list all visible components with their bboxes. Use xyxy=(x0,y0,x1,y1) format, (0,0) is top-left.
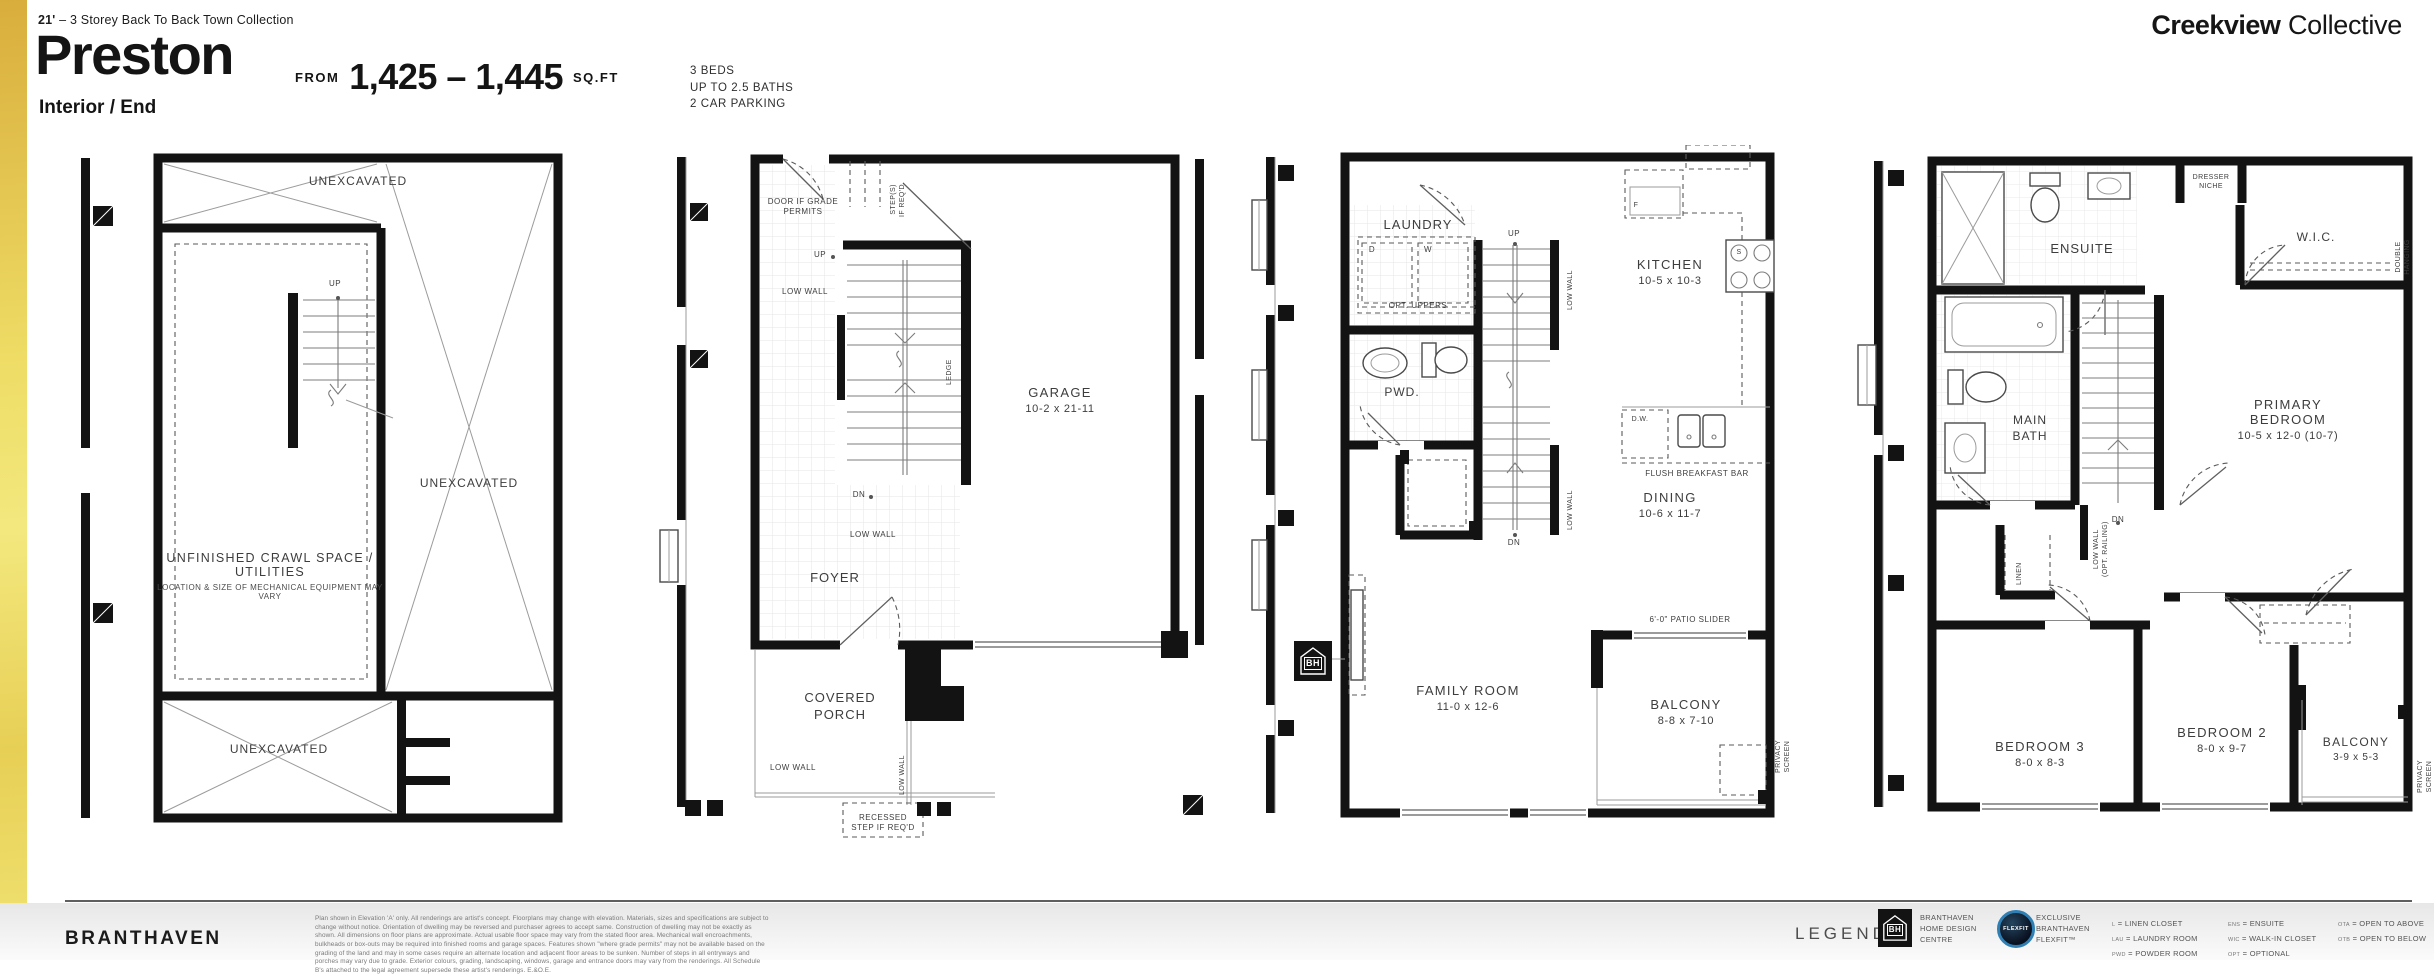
label-unexcavated-top: UNEXCAVATED xyxy=(309,174,407,190)
page-title: Preston xyxy=(35,22,233,87)
label-dryer: D xyxy=(1369,245,1375,255)
label-foyer: FOYER xyxy=(810,570,860,587)
balcony-name: BALCONY xyxy=(1650,697,1721,712)
flexfit-badge-text: FLEXFIT xyxy=(2003,926,2029,932)
label-low-wall-4: LOW WALL xyxy=(898,755,907,795)
spec-baths: UP TO 2.5 BATHS xyxy=(690,80,793,97)
label-main-bath: MAIN BATH xyxy=(2012,413,2047,444)
floor-plan-main: LAUNDRY D W OPT. UPPERS UP LOW WALL KITC… xyxy=(1250,145,1805,845)
branthaven-logo-a: BRANT xyxy=(65,928,144,949)
label-stove: S xyxy=(1736,248,1741,257)
garage-name: GARAGE xyxy=(1025,385,1094,400)
label-steps-if-reqd: STEP(S) IF REQ'D. xyxy=(889,182,907,217)
bh-letters: BH xyxy=(1304,657,1322,670)
label-low-wall-bottom: LOW WALL xyxy=(1566,490,1575,530)
floor-plan-ground: DOOR IF GRADE PERMITS STEP(S) IF REQ'D. … xyxy=(655,145,1210,845)
crawl-space-name: UNFINISHED CRAWL SPACE / UTILITIES xyxy=(155,551,385,579)
spec-beds: 3 BEDS xyxy=(690,63,793,80)
label-crawl-space: UNFINISHED CRAWL SPACE / UTILITIES LOCAT… xyxy=(155,551,385,601)
legend-title: LEGEND xyxy=(1795,924,1889,944)
label-powder-room: PWD. xyxy=(1384,385,1419,401)
label-privacy-screen: PRIVACY SCREEN xyxy=(1774,740,1792,773)
balcony-dim: 8-8 x 7-10 xyxy=(1650,715,1721,727)
floor-plan-upper: ENSUITE DRESSER NICHE W.I.C. DOUBLE HANG… xyxy=(1850,145,2430,835)
label-kitchen: KITCHEN 10-5 x 10-3 xyxy=(1637,257,1703,287)
kitchen-dim: 10-5 x 10-3 xyxy=(1637,275,1703,287)
label-unexcavated-right: UNEXCAVATED xyxy=(420,476,518,492)
family-room-name: FAMILY ROOM xyxy=(1416,683,1519,698)
label-low-wall-2: LOW WALL xyxy=(850,530,896,540)
label-ledge: LEDGE xyxy=(945,359,954,385)
label-up: UP xyxy=(1508,229,1520,239)
floor-plan-ground-drawing xyxy=(655,145,1210,845)
garage-dim: 10-2 x 21-11 xyxy=(1025,403,1094,415)
brand-logo: Creekview Collective xyxy=(2151,10,2402,41)
label-recessed-step: RECESSED STEP IF REQ'D xyxy=(851,813,914,834)
label-bedroom-3: BEDROOM 3 8-0 x 8-3 xyxy=(1995,739,2085,769)
dining-name: DINING xyxy=(1639,490,1702,505)
branthaven-logo-b: HAVEN xyxy=(144,928,222,949)
family-room-dim: 11-0 x 12-6 xyxy=(1416,701,1519,713)
gold-accent-bar xyxy=(0,0,27,960)
kitchen-name: KITCHEN xyxy=(1637,257,1703,272)
bedroom2-name: BEDROOM 2 xyxy=(2177,725,2267,740)
label-balcony-upper: BALCONY 3-9 x 5-3 xyxy=(2323,735,2389,763)
plan-variant: Interior / End xyxy=(39,97,156,119)
legend-column-2: ENS = ENSUITE WIC = WALK-IN CLOSET OPT =… xyxy=(2228,916,2316,961)
label-opt-uppers: OPT. UPPERS xyxy=(1389,301,1447,311)
legend-item-linen: L = LINEN CLOSET xyxy=(2112,916,2198,931)
legend-item-powder: PWD = POWDER ROOM xyxy=(2112,946,2198,961)
legend-item-laundry: LAU = LAUNDRY ROOM xyxy=(2112,931,2198,946)
sqft-range-block: FROM 1,425 – 1,445 SQ.FT xyxy=(295,56,619,98)
balcony-upper-dim: 3-9 x 5-3 xyxy=(2323,752,2389,763)
label-patio-slider: 6'-0" PATIO SLIDER xyxy=(1649,615,1730,625)
label-unexcavated-bottom: UNEXCAVATED xyxy=(230,742,328,758)
label-low-wall-1: LOW WALL xyxy=(782,287,828,297)
legend-item-ensuite: ENS = ENSUITE xyxy=(2228,916,2316,931)
label-double-hanging: DOUBLE HANGING xyxy=(2394,239,2412,275)
flexfit-badge: FLEXFIT xyxy=(1997,910,2035,948)
legend-bh-caption: BRANTHAVEN HOME DESIGN CENTRE xyxy=(1920,913,1977,946)
legend-column-3: OTA = OPEN TO ABOVE OTB = OPEN TO BELOW xyxy=(2338,916,2426,946)
primary-bedroom-dim: 10-5 x 12-0 (10-7) xyxy=(2217,430,2359,442)
label-door-if-grade: DOOR IF GRADE PERMITS xyxy=(768,197,839,218)
label-balcony: BALCONY 8-8 x 7-10 xyxy=(1650,697,1721,727)
sqft-unit: SQ.FT xyxy=(573,70,619,85)
label-bedroom-2: BEDROOM 2 8-0 x 9-7 xyxy=(2177,725,2267,755)
floor-plan-basement: UNEXCAVATED UNEXCAVATED UNEXCAVATED UNFI… xyxy=(63,148,608,838)
label-ensuite: ENSUITE xyxy=(2050,241,2113,258)
bedroom2-dim: 8-0 x 9-7 xyxy=(2177,743,2267,755)
floorplan-sheet: { "header": { "collection_bold": "21'", … xyxy=(0,0,2434,960)
bh-home-badge: BH xyxy=(1294,641,1332,681)
sqft-range: 1,425 – 1,445 xyxy=(349,56,563,98)
label-dn: DN xyxy=(1508,538,1521,548)
label-wic: W.I.C. xyxy=(2297,230,2336,246)
dining-dim: 10-6 x 11-7 xyxy=(1639,508,1702,520)
label-flush-breakfast-bar: FLUSH BREAKFAST BAR xyxy=(1645,469,1749,479)
label-fridge: F xyxy=(1634,201,1639,210)
label-up: UP xyxy=(814,250,826,260)
label-linen: LINEN xyxy=(2015,562,2024,585)
bedroom3-name: BEDROOM 3 xyxy=(1995,739,2085,754)
sqft-from-label: FROM xyxy=(295,70,339,85)
flexfit-caption: EXCLUSIVE BRANTHAVEN FLEXFIT™ xyxy=(2036,913,2090,946)
legend-item-wic: WIC = WALK-IN CLOSET xyxy=(2228,931,2316,946)
label-dining: DINING 10-6 x 11-7 xyxy=(1639,490,1702,520)
floor-plan-upper-drawing xyxy=(1850,145,2430,835)
label-low-wall-3: LOW WALL xyxy=(770,763,816,773)
spec-parking: 2 CAR PARKING xyxy=(690,96,793,113)
legal-disclaimer: Plan shown in Elevation 'A' only. All re… xyxy=(315,915,770,975)
floor-plan-basement-drawing xyxy=(63,148,608,838)
label-laundry: LAUNDRY xyxy=(1384,217,1453,234)
legend-bh-badge: BH xyxy=(1878,909,1912,947)
legend-item-open-below: OTB = OPEN TO BELOW xyxy=(2338,931,2426,946)
label-dn: DN xyxy=(2112,515,2125,525)
label-privacy-screen-upper: PRIVACY SCREEN xyxy=(2416,760,2434,793)
brand-bold: Creekview xyxy=(2151,10,2280,40)
brand-light: Collective xyxy=(2288,10,2402,40)
label-dishwasher: D.W. xyxy=(1632,415,1649,424)
legend-item-open-above: OTA = OPEN TO ABOVE xyxy=(2338,916,2426,931)
label-dn: DN xyxy=(853,490,866,500)
bedroom3-dim: 8-0 x 8-3 xyxy=(1995,757,2085,769)
label-washer: W xyxy=(1424,245,1432,255)
legend-bh-letters: BH xyxy=(1887,924,1904,936)
footer-divider xyxy=(65,900,2412,902)
label-primary-bedroom: PRIMARY BEDROOM 10-5 x 12-0 (10-7) xyxy=(2217,397,2359,442)
crawl-space-note: LOCATION & SIZE OF MECHANICAL EQUIPMENT … xyxy=(155,583,385,601)
legend-column-1: L = LINEN CLOSET LAU = LAUNDRY ROOM PWD … xyxy=(2112,916,2198,961)
label-family-room: FAMILY ROOM 11-0 x 12-6 xyxy=(1416,683,1519,713)
label-low-wall-top: LOW WALL xyxy=(1566,270,1575,310)
label-covered-porch: COVERED PORCH xyxy=(804,690,875,724)
label-dresser-niche: DRESSER NICHE xyxy=(2193,173,2230,191)
legend-item-optional: OPT = OPTIONAL xyxy=(2228,946,2316,961)
label-up: UP xyxy=(329,279,341,289)
floor-plan-main-drawing xyxy=(1250,145,1805,845)
primary-bedroom-name: PRIMARY BEDROOM xyxy=(2217,397,2359,427)
label-low-wall-opt-railing: LOW WALL (OPT. RAILING) xyxy=(2092,521,2110,577)
label-garage: GARAGE 10-2 x 21-11 xyxy=(1025,385,1094,415)
branthaven-logo: BRANTHAVEN xyxy=(65,928,222,950)
spec-list: 3 BEDS UP TO 2.5 BATHS 2 CAR PARKING xyxy=(690,63,793,113)
balcony-upper-name: BALCONY xyxy=(2323,735,2389,749)
